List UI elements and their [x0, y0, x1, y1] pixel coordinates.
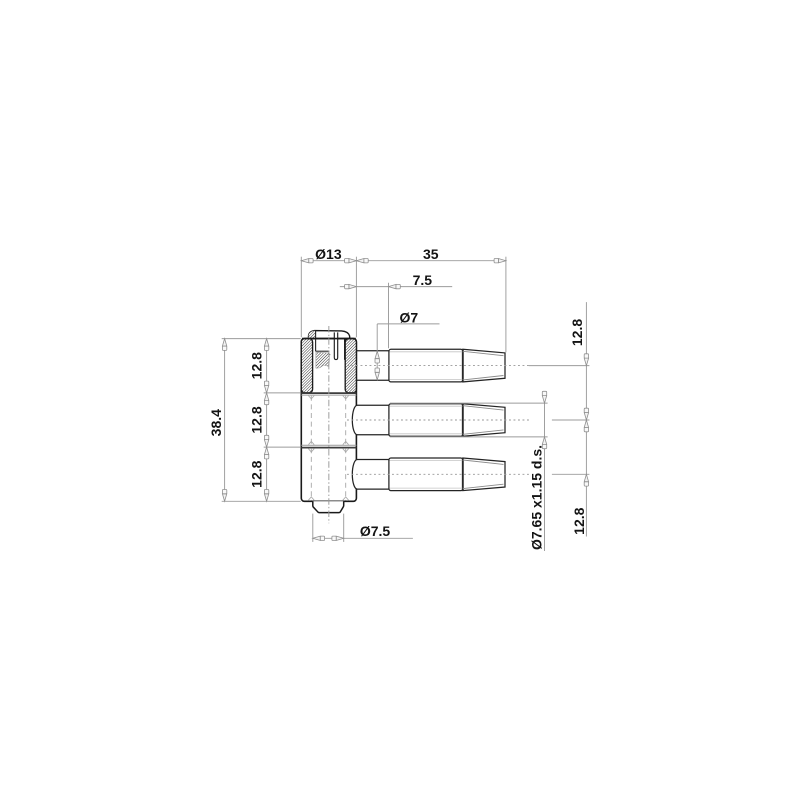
- svg-text:12.8: 12.8: [571, 507, 587, 534]
- svg-text:Ø7: Ø7: [400, 310, 419, 326]
- svg-text:Ø7.5: Ø7.5: [360, 523, 391, 539]
- svg-text:35: 35: [423, 246, 439, 262]
- svg-text:Ø13: Ø13: [315, 246, 342, 262]
- svg-text:12.8: 12.8: [248, 352, 264, 379]
- svg-text:12.8: 12.8: [248, 406, 264, 433]
- svg-text:38.4: 38.4: [208, 409, 224, 436]
- svg-text:12.8: 12.8: [248, 460, 264, 487]
- svg-text:12.8: 12.8: [569, 319, 585, 346]
- svg-text:Ø7.65 x1.15 d.s.: Ø7.65 x1.15 d.s.: [529, 445, 545, 550]
- svg-text:7.5: 7.5: [413, 272, 433, 288]
